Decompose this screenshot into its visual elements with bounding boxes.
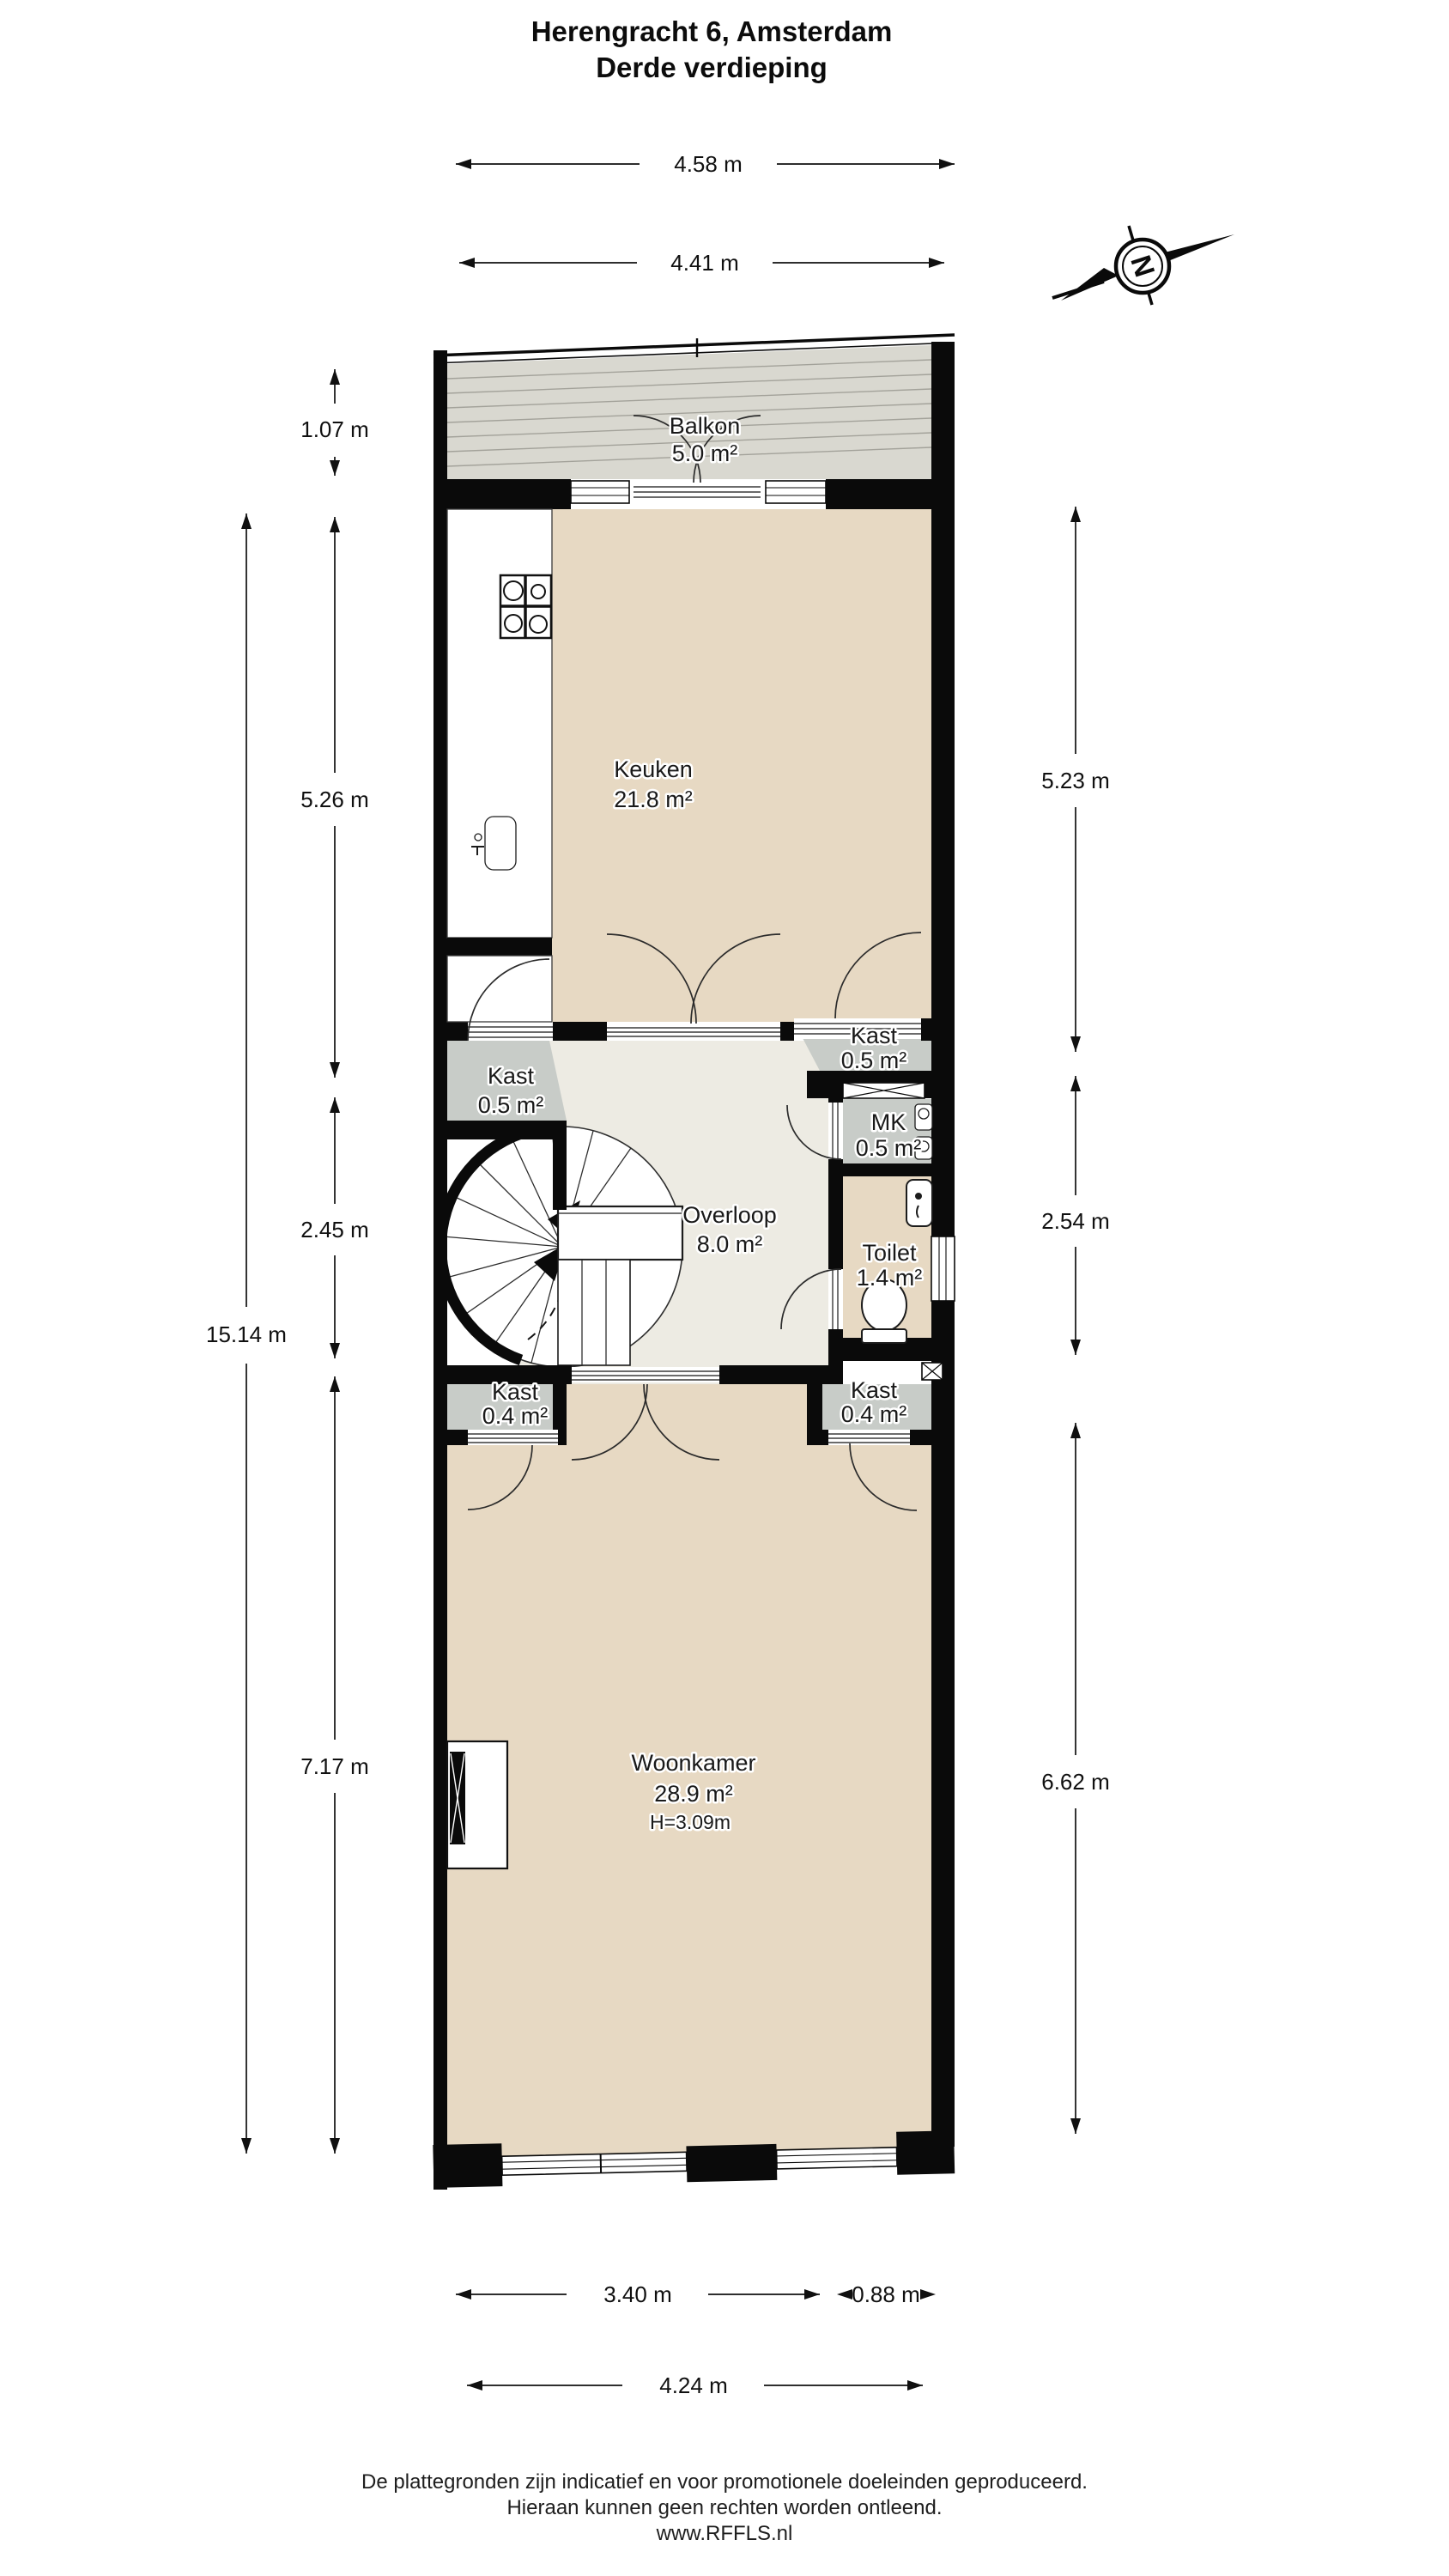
dimension-woonkamer-left: 7.17 m: [300, 1376, 369, 2154]
kast-bottom-right-label: Kast: [851, 1377, 898, 1403]
hand-basin-icon: [906, 1180, 932, 1226]
dim-middle-right-label: 2.54 m: [1041, 1208, 1110, 1234]
dim-top-inner-label: 4.41 m: [670, 250, 739, 276]
wall-front-right-pier: [826, 479, 955, 509]
wall-front-left-pier: [433, 479, 571, 509]
mk-label: MK: [871, 1109, 906, 1135]
woonkamer-area: 28.9 m²: [654, 1781, 733, 1807]
bottom-pier-left: [433, 2143, 502, 2188]
bottom-pier-right: [896, 2130, 955, 2175]
mk-area: 0.5 m²: [856, 1135, 922, 1161]
dimension-keuken-right: 5.23 m: [1041, 507, 1110, 1052]
title-line-1: Herengracht 6, Amsterdam: [531, 15, 893, 47]
kast-bottom-left-area: 0.4 m²: [482, 1403, 549, 1429]
dimension-bottom-window: 3.40 m: [456, 2281, 820, 2307]
dim-bottom-window-label: 3.40 m: [603, 2281, 672, 2307]
kast-bottom-right-area: 0.4 m²: [841, 1401, 907, 1427]
dim-bottom-pier-label: 0.88 m: [852, 2281, 920, 2307]
kast-top-right-area: 0.5 m²: [841, 1048, 907, 1073]
dimension-top-outer: 4.58 m: [456, 151, 955, 177]
dim-woonkamer-right-label: 6.62 m: [1041, 1769, 1110, 1795]
dimension-overloop-left: 2.45 m: [300, 1097, 369, 1358]
dim-balkon-depth-label: 1.07 m: [300, 416, 369, 442]
dimension-keuken-left: 5.26 m: [300, 517, 369, 1078]
footer-disclaimer: De plattegronden zijn indicatief en voor…: [361, 2470, 1088, 2545]
keuken-label: Keuken: [614, 756, 693, 782]
fireplace-icon: [447, 1741, 507, 1868]
dimension-top-inner: 4.41 m: [459, 250, 944, 276]
toilet-label: Toilet: [862, 1240, 917, 1266]
floorplan-page: Herengracht 6, Amsterdam Derde verdiepin…: [0, 0, 1449, 2576]
wall-left-exterior: [433, 350, 447, 2190]
dimension-balkon-depth: 1.07 m: [300, 369, 369, 476]
title-line-2: Derde verdieping: [596, 52, 828, 83]
balkon-label: Balkon: [670, 413, 741, 439]
woonkamer-ceiling-height: H=3.09m: [650, 1811, 731, 1833]
dimension-woonkamer-right: 6.62 m: [1041, 1423, 1110, 2134]
dim-woonkamer-left-label: 7.17 m: [300, 1753, 369, 1779]
front-window-left: [571, 481, 629, 503]
kast-bottom-left-label: Kast: [492, 1379, 539, 1405]
compass-north-icon: N: [1052, 226, 1234, 305]
stair-landing: [558, 1206, 682, 1260]
dim-left-total-label: 15.14 m: [206, 1321, 287, 1347]
dimension-bottom-total: 4.24 m: [467, 2372, 923, 2398]
overloop-area: 8.0 m²: [697, 1231, 763, 1257]
overloop-label: Overloop: [682, 1202, 777, 1228]
bottom-pier-middle: [686, 2144, 777, 2182]
keuken-area: 21.8 m²: [614, 787, 693, 812]
toilet-area: 1.4 m²: [857, 1265, 923, 1291]
dim-overloop-left-label: 2.45 m: [300, 1217, 369, 1242]
kast-top-left-area: 0.5 m²: [478, 1092, 544, 1118]
stair-straight-treads: [558, 1260, 630, 1365]
dimension-bottom-pier: 0.88 m: [837, 2281, 936, 2307]
front-window-right: [766, 481, 826, 503]
dim-keuken-right-label: 5.23 m: [1041, 768, 1110, 793]
stove-icon: [500, 575, 551, 638]
dimension-left-total: 15.14 m: [206, 513, 287, 2154]
kast-top-left-label: Kast: [488, 1063, 535, 1089]
kast-top-right-label: Kast: [851, 1023, 898, 1048]
dim-top-outer-label: 4.58 m: [674, 151, 743, 177]
footer-line-1: De plattegronden zijn indicatief en voor…: [361, 2470, 1088, 2494]
bottom-window-left: [502, 2152, 687, 2175]
footer-line-2: Hieraan kunnen geen rechten worden ontle…: [506, 2496, 942, 2519]
balkon-area: 5.0 m²: [672, 440, 738, 466]
bottom-window-right: [777, 2148, 897, 2169]
page-title: Herengracht 6, Amsterdam Derde verdiepin…: [531, 15, 893, 83]
dim-keuken-left-label: 5.26 m: [300, 787, 369, 812]
woonkamer-label: Woonkamer: [631, 1750, 755, 1776]
dimension-middle-right: 2.54 m: [1041, 1076, 1110, 1355]
toilet-window: [931, 1236, 955, 1301]
dim-bottom-total-label: 4.24 m: [659, 2372, 728, 2398]
footer-line-3: www.RFFLS.nl: [656, 2522, 793, 2545]
floorplan-drawing: Herengracht 6, Amsterdam Derde verdiepin…: [0, 0, 1449, 2576]
